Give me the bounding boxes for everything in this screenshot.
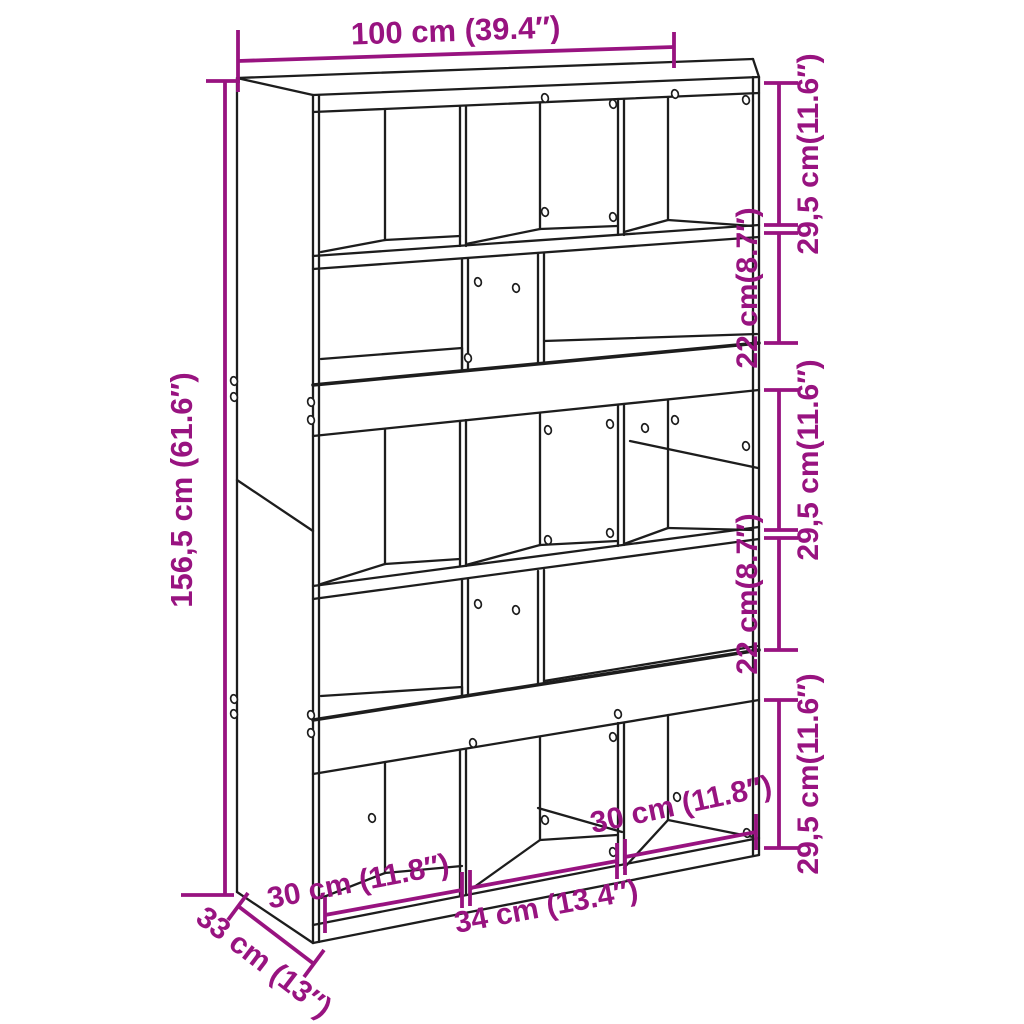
floor-wedge: [385, 559, 460, 564]
back-panel-edge: [630, 441, 758, 468]
dim-line: [238, 47, 674, 61]
top-front-edge: [313, 77, 759, 95]
cam-hole: [609, 212, 617, 222]
sec-backboard: [544, 646, 757, 681]
cam-hole: [544, 425, 552, 435]
dimension-label-right-4: 22 cm(8.7″): [731, 513, 764, 674]
cam-hole: [512, 283, 520, 293]
cam-hole: [641, 423, 649, 433]
cam-hole: [469, 738, 477, 748]
dimension-label-bottom-1: 30 cm (11.8″): [264, 848, 451, 916]
cam-hole: [512, 605, 520, 615]
dimension-label-right-2: 22 cm(8.7″): [731, 207, 764, 368]
shelf-line: [313, 527, 759, 586]
shelf-line-heavy: [313, 343, 759, 385]
floor-wedge: [321, 240, 385, 252]
side-panel-joint: [237, 480, 313, 531]
cam-hole: [474, 599, 482, 609]
cam-hole: [474, 277, 482, 287]
shelf-pin-holes: [230, 89, 751, 857]
cam-hole: [671, 415, 679, 425]
cam-hole: [606, 419, 614, 429]
cam-hole: [609, 99, 617, 109]
cam-hole: [541, 815, 549, 825]
shelf-line: [313, 390, 759, 436]
product-dimension-image: 100 cm (39.4″) 156,5 cm (61.6″) 29,5 cm(…: [0, 0, 1024, 1024]
dimension-label-height: 156,5 cm (61.6″): [164, 372, 199, 607]
dimension-label-width: 100 cm (39.4″): [350, 9, 561, 51]
sec-backboard: [321, 348, 462, 359]
floor-wedge: [540, 226, 617, 229]
shelf-line-heavy: [313, 650, 759, 720]
cam-hole: [541, 207, 549, 217]
cam-hole: [742, 441, 750, 451]
sec-backboard: [321, 687, 462, 696]
top-right-join: [753, 59, 759, 77]
bookcase-dimension-diagram: 100 cm (39.4″) 156,5 cm (61.6″) 29,5 cm(…: [0, 0, 1024, 1024]
cam-hole: [368, 813, 376, 823]
dimension-label-right-1: 29,5 cm(11.6″): [792, 53, 825, 254]
top-left-join: [237, 78, 313, 95]
cam-hole: [609, 732, 617, 742]
shelf-line: [313, 539, 759, 599]
cam-hole: [614, 709, 622, 719]
cam-hole: [464, 353, 472, 363]
cam-hole: [742, 95, 750, 105]
sec-backboard: [544, 334, 757, 341]
cam-hole: [606, 528, 614, 538]
cam-hole: [544, 535, 552, 545]
top-underside: [313, 93, 759, 112]
dimension-label-right-5: 29,5 cm(11.6″): [792, 673, 825, 874]
floor-wedge: [624, 220, 668, 232]
floor-wedge: [385, 236, 460, 240]
dimension-label-right-3: 29,5 cm(11.6″): [792, 359, 825, 560]
